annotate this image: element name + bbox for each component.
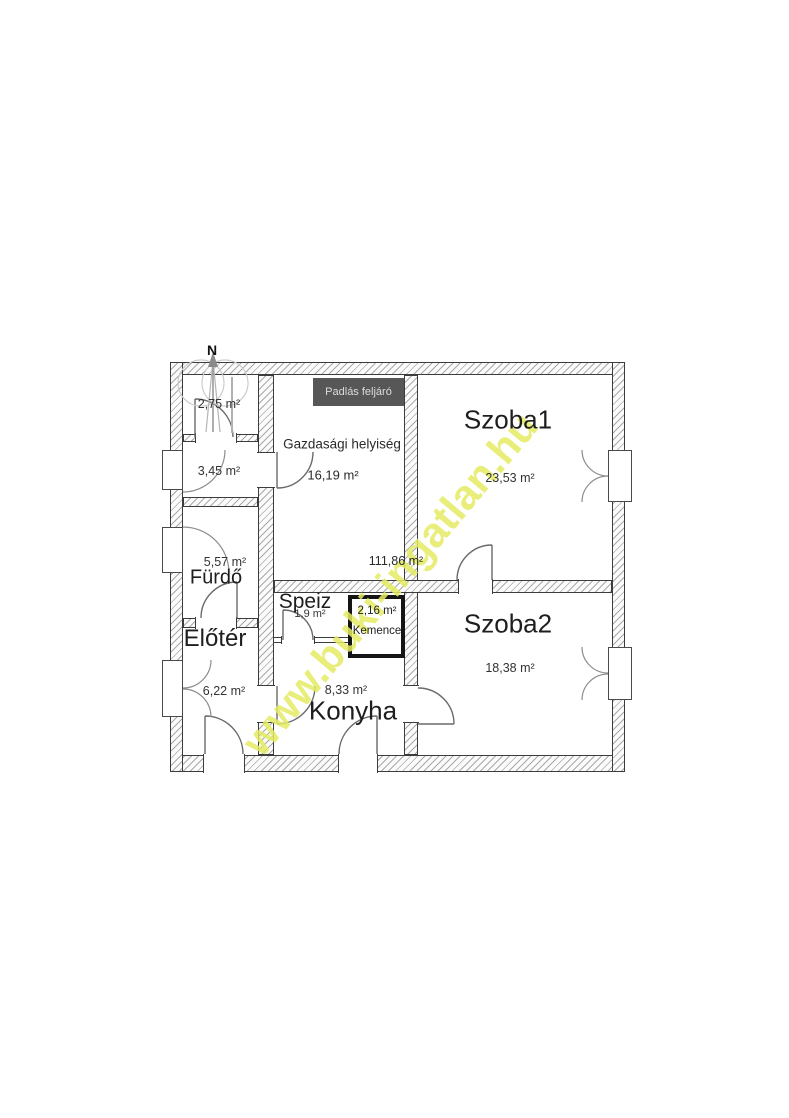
- window-casement-room2-upper: [582, 647, 608, 673]
- room2-area-label: 18,38 m²: [485, 661, 534, 675]
- window-storage-west: [162, 450, 183, 490]
- wc-area-label: 2,75 m²: [198, 397, 240, 411]
- oven-name-label: Kemence: [353, 625, 402, 637]
- window-bathroom-west: [162, 527, 183, 573]
- entry-hall-name-label: Előtér: [184, 625, 247, 653]
- door-gap-room1-room2: [458, 579, 493, 594]
- north-label: N: [207, 342, 217, 358]
- door-swing-room1-room2: [457, 545, 492, 580]
- storage-area-label: 3,45 m²: [198, 464, 240, 478]
- attic-access-box: Padlás feljáró: [313, 378, 404, 406]
- window-casement-room2-lower: [582, 674, 608, 700]
- kitchen-name-label: Konyha: [309, 696, 397, 727]
- room1-area-label: 23,53 m²: [485, 471, 534, 485]
- total-area-label: 111,86 m²: [369, 554, 423, 568]
- window-room1-east: [608, 450, 632, 502]
- door-gap-utility: [257, 452, 275, 488]
- utility-room-name-label: Gazdasági helyiség: [283, 437, 401, 452]
- oven-area-label: 2,16 m²: [358, 605, 397, 617]
- door-gap-kitchen-room2: [403, 685, 419, 723]
- pantry-area-label: 1,9 m²: [294, 608, 325, 620]
- room1-name-label: Szoba1: [464, 405, 552, 436]
- bathroom-name-label: Fürdő: [190, 567, 242, 590]
- door-gap-wc: [195, 433, 237, 443]
- window-room2-east: [608, 647, 632, 700]
- kitchen-exterior-door-gap: [338, 754, 378, 773]
- door-swing-kitchen-room2: [418, 688, 454, 724]
- floor-plan: Padlás feljáró: [0, 0, 789, 1118]
- room2-name-label: Szoba2: [464, 609, 552, 640]
- entry-hall-area-label: 6,22 m²: [203, 684, 245, 698]
- utility-room-area-label: 16,19 m²: [307, 468, 358, 483]
- window-casement-room1-lower: [582, 476, 608, 502]
- outer-wall-right: [612, 362, 625, 772]
- window-casement-room1-upper: [582, 450, 608, 476]
- window-hall-west: [162, 660, 183, 717]
- outer-wall-top: [170, 362, 625, 375]
- attic-access-label: Padlás feljáró: [325, 386, 392, 398]
- wall-storage-bottom: [183, 497, 258, 507]
